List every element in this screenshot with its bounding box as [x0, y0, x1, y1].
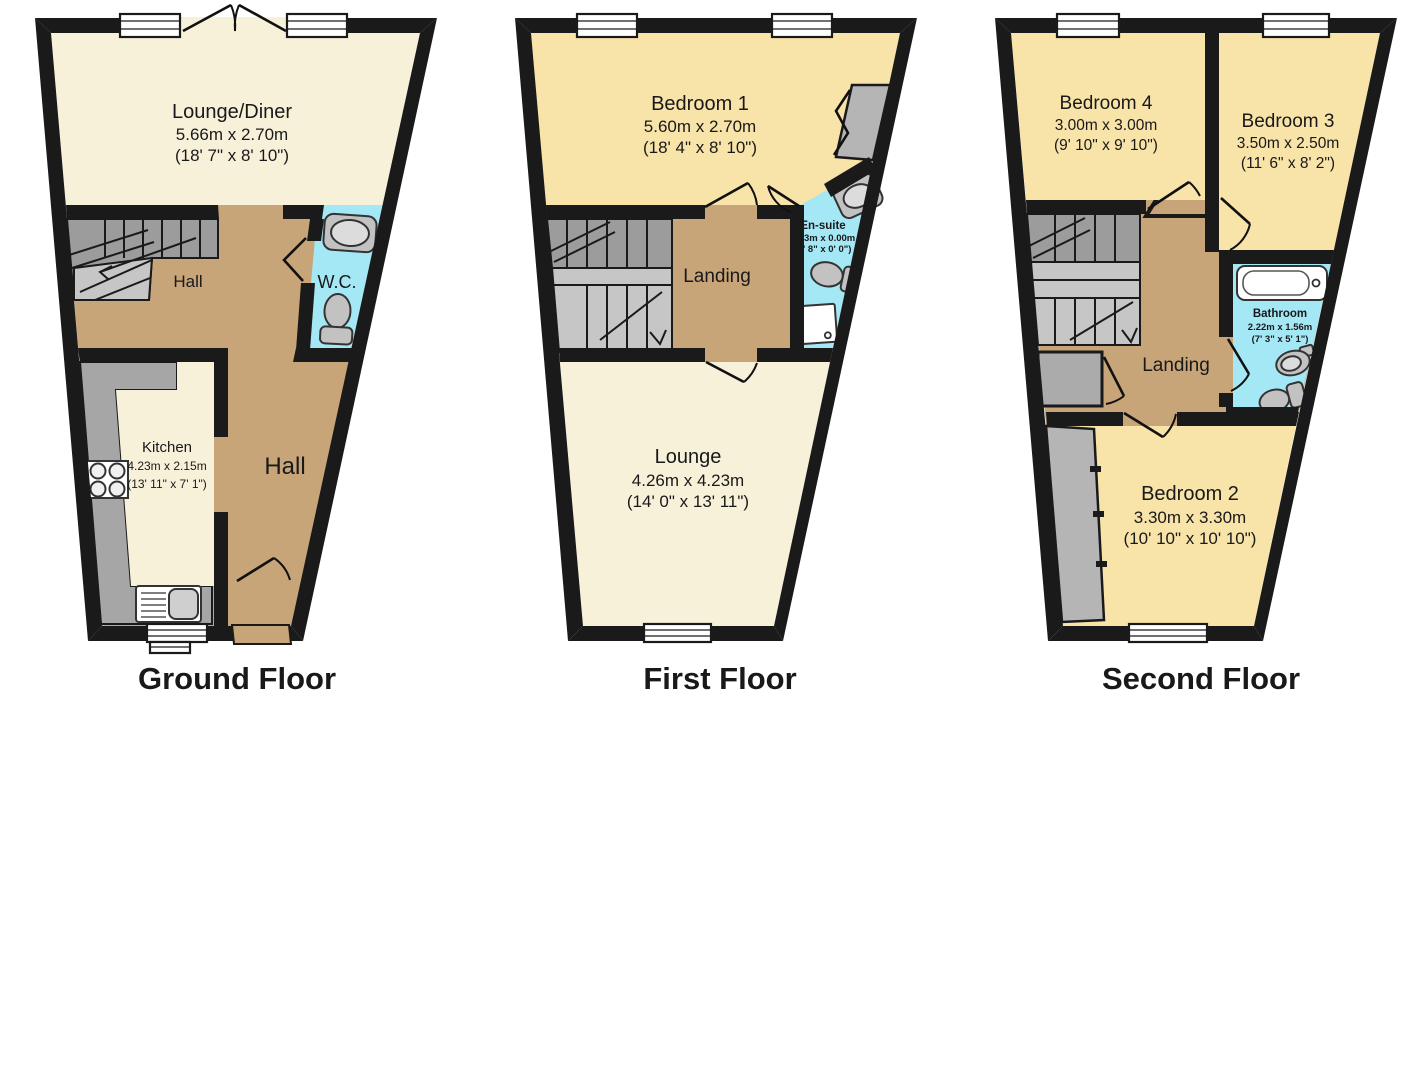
window-icon	[577, 14, 637, 37]
room-dims-ft: (3' 8" x 0' 0")	[795, 244, 852, 255]
french-doors-icon	[181, 5, 286, 34]
sink-icon	[323, 213, 377, 253]
room-title: Lounge	[655, 446, 722, 468]
hob-icon	[87, 461, 128, 498]
room-title: W.C.	[318, 272, 357, 292]
window-icon	[1129, 624, 1207, 642]
window-icon	[772, 14, 832, 37]
window-icon	[287, 14, 347, 37]
room-dims-ft: (11' 6" x 8' 2")	[1241, 155, 1335, 172]
room-title: Bedroom 2	[1141, 483, 1239, 505]
kitchen-sink-icon	[136, 586, 201, 622]
floor-caption: Second Floor	[1102, 661, 1300, 696]
floor-ground: Lounge/Diner 5.66m x 2.70m (18' 7" x 8' …	[35, 5, 437, 696]
front-door	[232, 625, 291, 644]
room-dims-m: 3.50m x 2.50m	[1237, 135, 1340, 152]
room-dims-ft: (18' 7" x 8' 10")	[175, 146, 289, 165]
room-dims-m: 2.22m x 1.56m	[1248, 322, 1312, 333]
room-title: Landing	[683, 266, 751, 287]
room-title: Landing	[1142, 355, 1210, 376]
room-dims-ft: (13' 11" x 7' 1")	[127, 477, 207, 491]
room-dims-ft: (14' 0" x 13' 11")	[627, 492, 749, 511]
room-title: Bedroom 3	[1242, 111, 1335, 132]
window-icon	[120, 14, 180, 37]
room-dims-m: 4.23m x 2.15m	[127, 459, 206, 473]
room-title: Hall	[173, 272, 202, 291]
room-title: Bedroom 1	[651, 93, 749, 115]
floor-caption: First Floor	[643, 661, 796, 696]
window-icon	[1263, 14, 1329, 37]
room-title: Bedroom 4	[1060, 93, 1153, 114]
room-title: Lounge/Diner	[172, 101, 292, 123]
room-title: En-suite	[800, 220, 845, 232]
room-dims-m: 5.60m x 2.70m	[644, 117, 756, 136]
room-dims-m: 4.26m x 4.23m	[632, 471, 744, 490]
room-dims-ft: (18' 4" x 8' 10")	[643, 138, 757, 157]
room-title: Kitchen	[142, 439, 192, 456]
room-title: Hall	[264, 453, 305, 480]
room-title: Bathroom	[1253, 308, 1307, 320]
floor-caption: Ground Floor	[138, 661, 336, 696]
floorplan-page: Lounge/Diner 5.66m x 2.70m (18' 7" x 8' …	[0, 0, 1425, 1080]
bath-icon	[1237, 266, 1327, 300]
room-dims-m: 3.30m x 3.30m	[1134, 508, 1246, 527]
room-dims-m: 5.66m x 2.70m	[176, 125, 288, 144]
floor-first: Bedroom 1 5.60m x 2.70m (18' 4" x 8' 10"…	[515, 14, 917, 696]
room-dims-ft: (7' 3" x 5' 1")	[1252, 334, 1309, 345]
window-icon	[147, 624, 207, 653]
floor-second: Bedroom 4 3.00m x 3.00m (9' 10" x 9' 10"…	[995, 14, 1397, 696]
window-icon	[1057, 14, 1119, 37]
room-kitchen	[116, 362, 214, 586]
staircase-first	[547, 219, 672, 352]
room-dims-ft: (9' 10" x 9' 10")	[1054, 137, 1158, 154]
staircase-second	[1027, 214, 1140, 345]
floorplan-canvas: Lounge/Diner 5.66m x 2.70m (18' 7" x 8' …	[0, 0, 1425, 1080]
window-icon	[644, 624, 711, 642]
room-dims-m: 3.00m x 3.00m	[1055, 117, 1158, 134]
room-dims-m: 1.13m x 0.00m	[791, 233, 855, 244]
room-dims-ft: (10' 10" x 10' 10")	[1124, 529, 1257, 548]
kitchen-area	[80, 362, 214, 624]
